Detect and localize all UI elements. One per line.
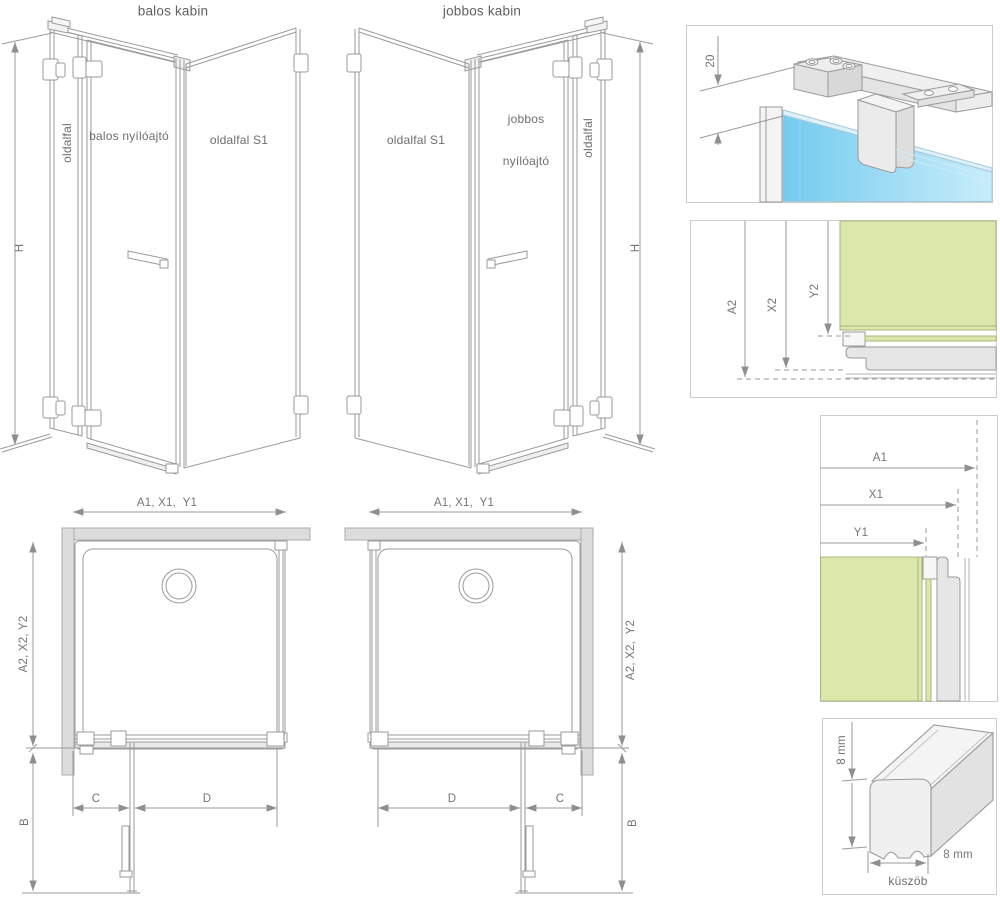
threshold-width-label: 8 mm xyxy=(943,849,973,861)
bottom-profile xyxy=(846,347,996,370)
right-side-wall-label: oldalfal xyxy=(581,118,595,158)
left-plan-width-dims: A1, X1, Y1 xyxy=(137,497,197,509)
right-door-label: jobbos nyílóajtó xyxy=(503,84,550,182)
door-glass-edge xyxy=(865,336,996,341)
right-plan-depth-dims: A2, X2, Y2 xyxy=(625,620,637,680)
glass-cap-profile xyxy=(843,332,865,346)
left-cabin-plan xyxy=(22,512,310,893)
shower-cabin-technical-diagram: balos kabin jobbos kabin oldalfal balos … xyxy=(0,0,1000,897)
left-door-label: balos nyílóajtó xyxy=(89,129,169,143)
threshold-caption: küszöb xyxy=(888,874,927,888)
detail-x1-label: X1 xyxy=(869,489,883,501)
left-plan-d-label: D xyxy=(203,793,212,805)
right-side-panel-label: oldalfal S1 xyxy=(387,133,445,147)
glass-cap-profile xyxy=(923,557,937,579)
detail-corner-width xyxy=(820,416,998,702)
detail-y1-label: Y1 xyxy=(854,527,868,539)
detail-top-bar xyxy=(687,26,993,203)
left-cabin-drawing xyxy=(0,17,308,474)
right-plan-c-label: C xyxy=(556,793,565,805)
left-cabin-title: balos kabin xyxy=(138,4,209,19)
left-height-label: H xyxy=(14,244,26,253)
right-door-label-line1: jobbos xyxy=(503,112,550,126)
detail-x2-label: X2 xyxy=(767,298,779,312)
detail-threshold xyxy=(823,719,997,895)
left-plan-c-label: C xyxy=(92,793,101,805)
bar-offset-dim-label: 20 xyxy=(705,54,717,67)
threshold-height-label: 8 mm xyxy=(836,735,848,765)
right-cabin-drawing xyxy=(347,17,655,474)
detail-a2-label: A2 xyxy=(727,300,739,314)
detail-a1-label: A1 xyxy=(873,452,887,464)
door-glass-edge xyxy=(926,579,931,701)
left-plan-b-label: B xyxy=(19,818,31,826)
side-profile xyxy=(937,557,960,701)
right-door-label-line2: nyílóajtó xyxy=(503,154,550,168)
left-side-panel-label: oldalfal S1 xyxy=(210,133,268,147)
right-plan-width-dims: A1, X1, Y1 xyxy=(434,497,494,509)
left-side-wall-label: oldalfal xyxy=(60,123,74,163)
right-cabin-plan xyxy=(345,512,633,893)
detail-y2-label: Y2 xyxy=(809,284,821,298)
wall-glass-top-view xyxy=(821,557,923,701)
wall-glass-top-view xyxy=(840,221,996,330)
right-cabin-title: jobbos kabin xyxy=(443,4,521,19)
right-plan-d-label: D xyxy=(448,793,457,805)
right-plan-b-label: B xyxy=(627,819,639,827)
right-height-label: H xyxy=(630,244,642,253)
left-plan-depth-dims: A2, X2, Y2 xyxy=(18,616,30,673)
